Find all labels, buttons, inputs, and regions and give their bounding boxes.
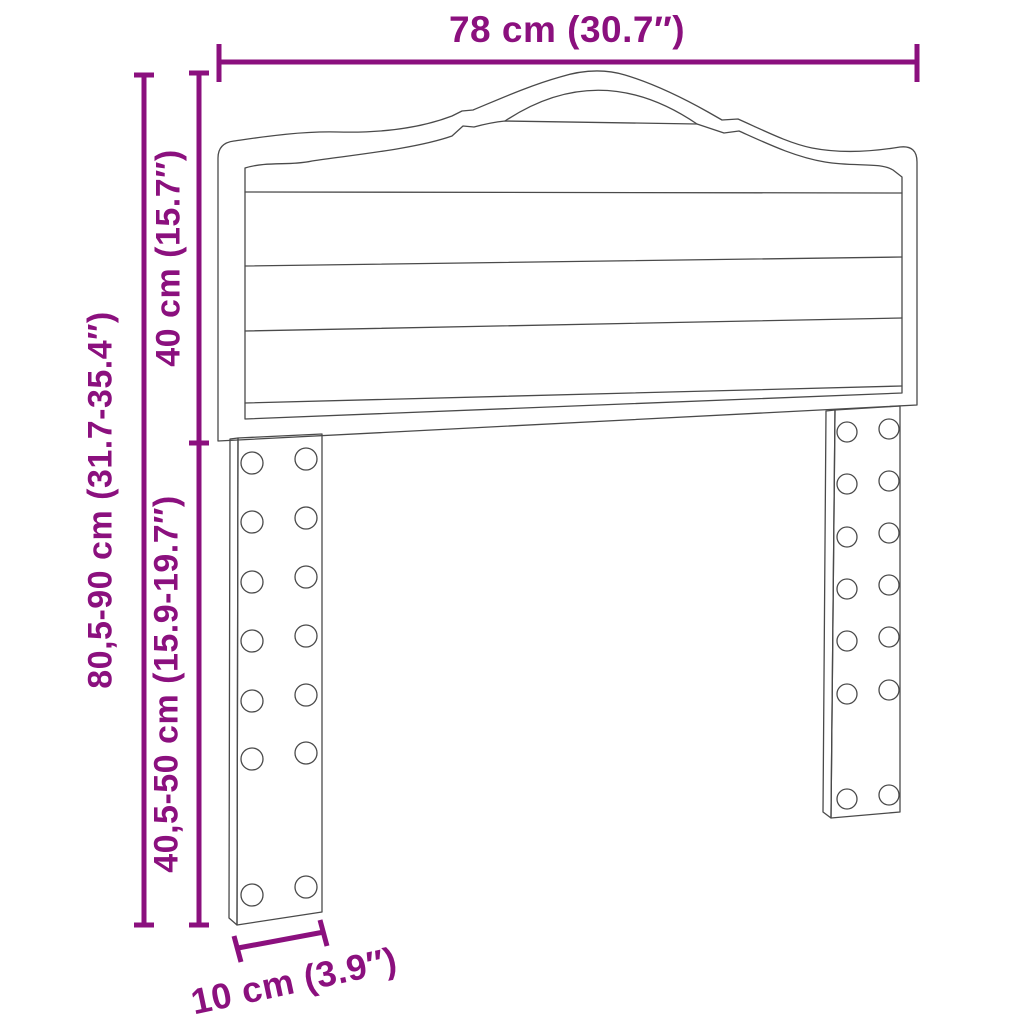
inner-arch-curve <box>505 90 697 124</box>
left-leg-holes <box>241 448 317 906</box>
slat-lines <box>245 192 902 403</box>
width-dimension-label: 78 cm (30.7″) <box>449 9 685 51</box>
headboard-figure <box>218 71 917 925</box>
diagram-canvas: 78 cm (30.7″) 80,5-90 cm (31.7-35.4″) 40… <box>0 0 1024 1024</box>
panel-height-dimension-label: 40 cm (15.7″) <box>150 149 189 366</box>
right-leg-holes <box>837 419 899 809</box>
right-leg-front-face <box>831 406 900 818</box>
headboard-outer-frame <box>218 71 917 441</box>
leg-height-dimension-label: 40,5-50 cm (15.9-19.7″) <box>148 495 187 872</box>
headboard-inner-panel <box>245 121 902 419</box>
dimension-lines <box>134 44 917 962</box>
panel-and-leg-height-dimension-line <box>189 73 209 925</box>
total-height-dimension-label: 80,5-90 cm (31.7-35.4″) <box>82 311 121 688</box>
